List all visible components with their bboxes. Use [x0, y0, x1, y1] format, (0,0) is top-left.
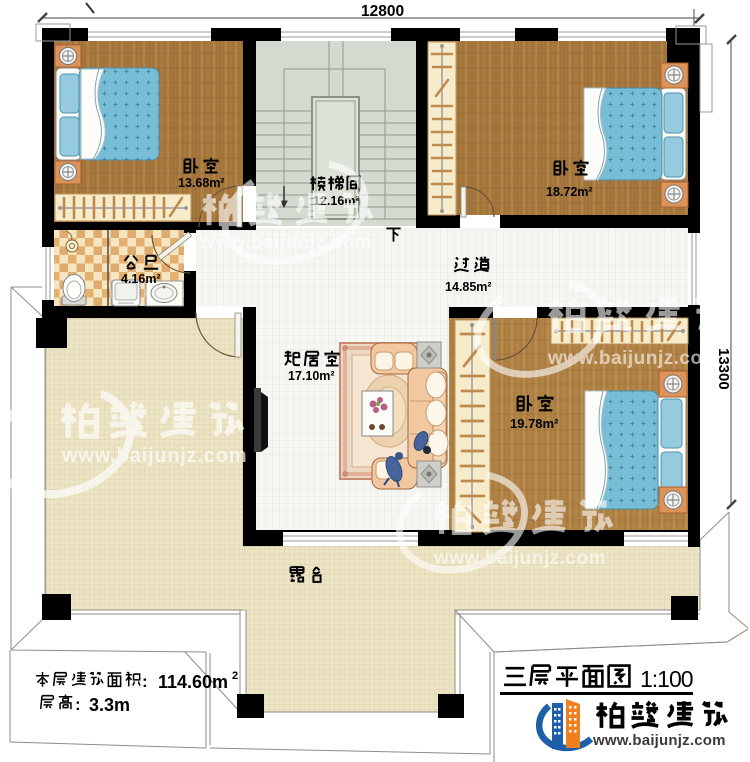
svg-text:www.baijunjz.com: www.baijunjz.com: [433, 548, 606, 569]
svg-text:18.72m²: 18.72m²: [546, 185, 593, 199]
svg-text::: :: [75, 695, 81, 714]
svg-text:12800: 12800: [361, 3, 404, 20]
svg-text:114.60m: 114.60m: [158, 672, 228, 692]
svg-text:1:100: 1:100: [640, 666, 693, 692]
svg-text:14.85m²: 14.85m²: [445, 280, 492, 294]
svg-text:www.baijunjz.com: www.baijunjz.com: [547, 348, 720, 369]
svg-text:3.3m: 3.3m: [89, 695, 130, 715]
svg-text:4.16m²: 4.16m²: [121, 272, 161, 286]
svg-text:13.68m²: 13.68m²: [178, 176, 225, 190]
svg-text:17.10m²: 17.10m²: [288, 369, 335, 383]
svg-text:www.baijunjz.com: www.baijunjz.com: [592, 732, 726, 749]
svg-text:www.baijunjz.com: www.baijunjz.com: [61, 445, 247, 467]
svg-text:2: 2: [232, 670, 238, 682]
svg-text:19.78m²: 19.78m²: [510, 416, 559, 431]
svg-text:www.baijunjz.com: www.baijunjz.com: [199, 232, 372, 253]
svg-text::: :: [142, 672, 148, 691]
